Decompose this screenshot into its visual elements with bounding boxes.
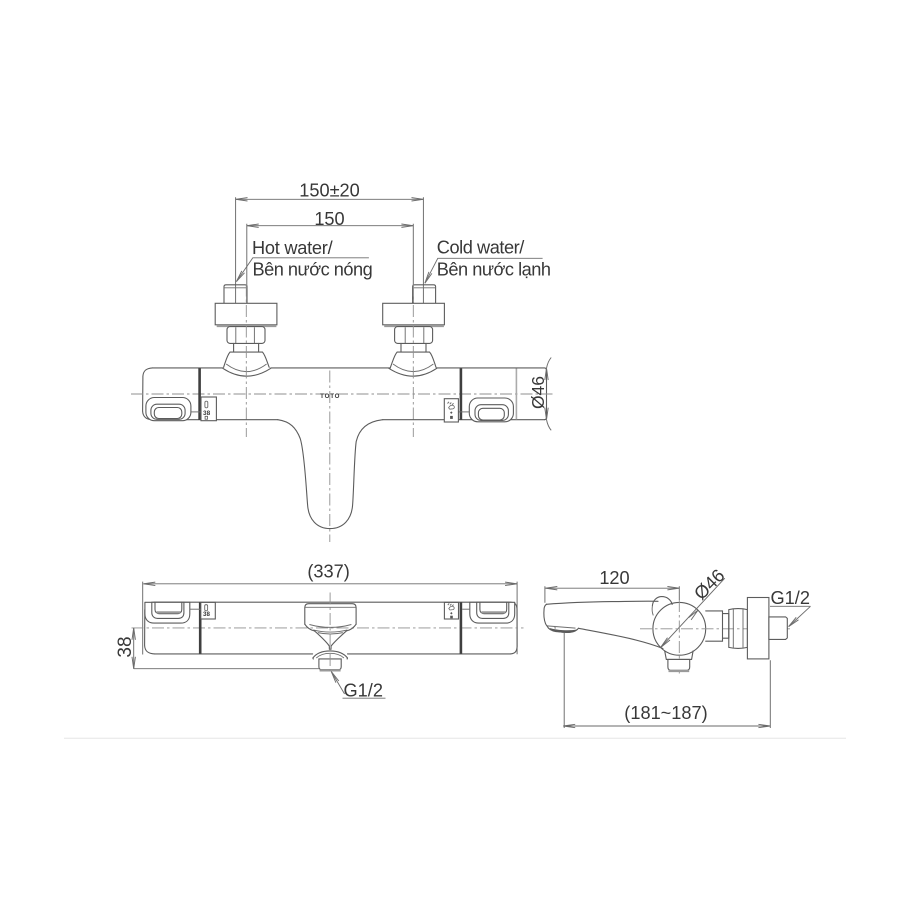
svg-text:Bên nước lạnh: Bên nước lạnh: [437, 259, 551, 279]
svg-text:Ø46: Ø46: [528, 376, 548, 409]
svg-text:38: 38: [203, 611, 210, 618]
svg-text:Bên nước nóng: Bên nước nóng: [253, 259, 373, 279]
svg-text:38: 38: [203, 410, 211, 417]
svg-text:120: 120: [599, 568, 629, 588]
svg-text:Ø46: Ø46: [690, 565, 728, 603]
svg-text:(337): (337): [307, 561, 349, 581]
svg-text:G1/2: G1/2: [344, 680, 383, 700]
svg-text:Cold water/: Cold water/: [437, 238, 525, 258]
svg-text:150±20: 150±20: [299, 181, 360, 201]
svg-text:(181~187): (181~187): [624, 703, 707, 723]
svg-text:G1/2: G1/2: [771, 588, 810, 608]
svg-text:38: 38: [115, 636, 136, 657]
svg-text:Hot water/: Hot water/: [252, 238, 334, 258]
svg-text:TOTO: TOTO: [320, 393, 340, 400]
